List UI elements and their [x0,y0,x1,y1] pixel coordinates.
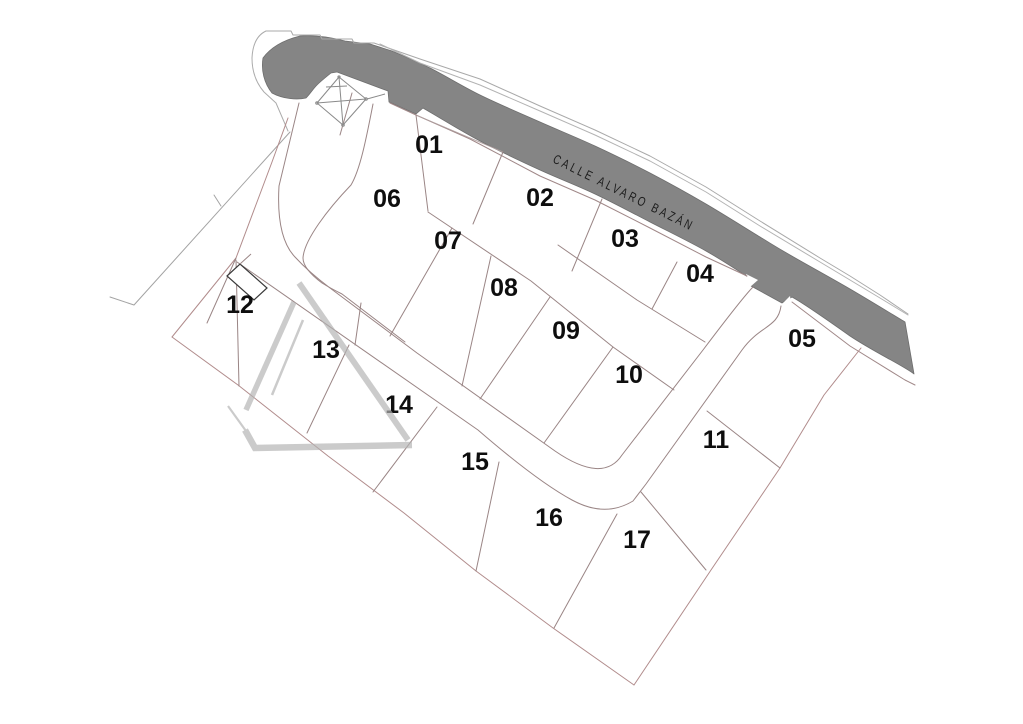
svg-text:02: 02 [526,184,554,212]
svg-text:10: 10 [615,361,643,389]
svg-text:06: 06 [373,185,401,213]
svg-text:15: 15 [461,448,489,476]
svg-text:11: 11 [703,426,730,454]
svg-text:07: 07 [434,227,462,255]
svg-text:04: 04 [686,260,714,288]
svg-text:03: 03 [611,225,639,253]
svg-text:08: 08 [490,274,518,302]
svg-text:12: 12 [226,291,254,319]
svg-text:17: 17 [623,526,651,554]
svg-text:16: 16 [535,504,563,532]
svg-text:01: 01 [415,131,443,159]
svg-text:09: 09 [552,317,580,345]
svg-text:05: 05 [788,325,816,353]
